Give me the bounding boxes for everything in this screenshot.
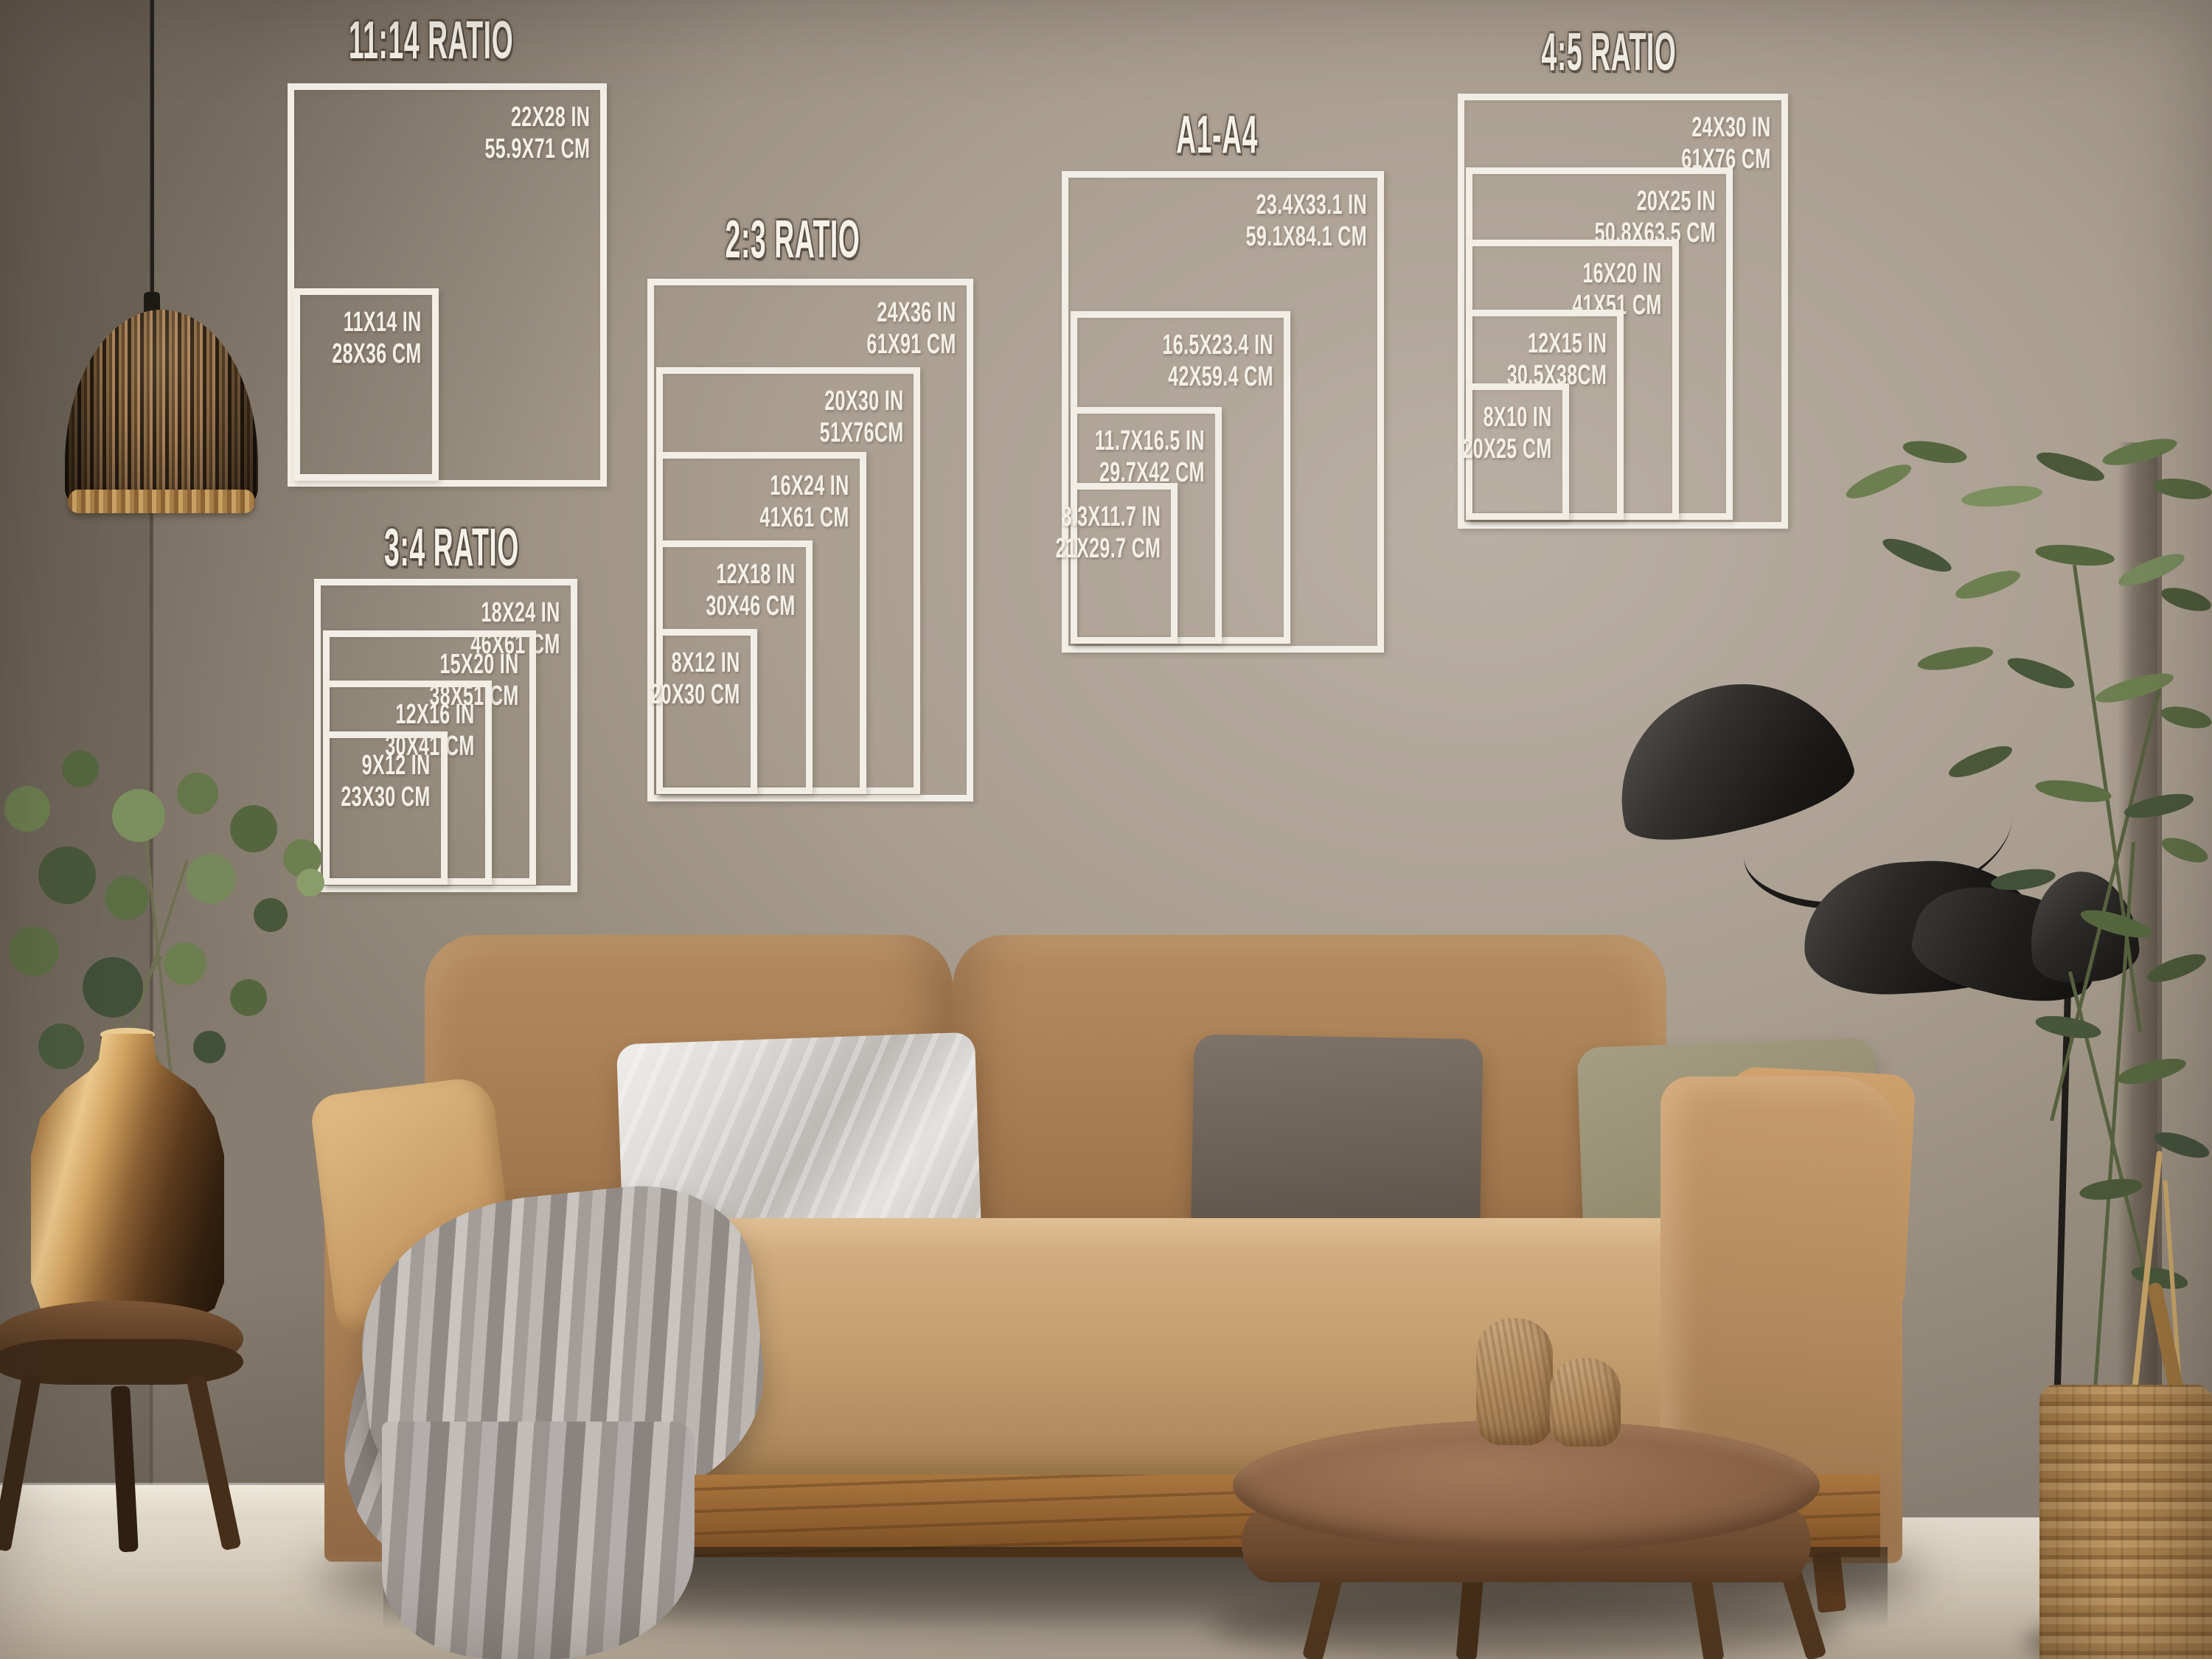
plant-leaf [38, 1023, 84, 1069]
size-label-12x18: 12X18 IN30X46 CM [706, 559, 796, 623]
pendant-lamp-rim [68, 490, 255, 513]
guide-title-a1-a4: A1-A4 [1133, 105, 1301, 165]
size-label-24x30: 24X30 IN61X76 CM [1682, 112, 1771, 176]
size-label-a1: 23.4X33.1 IN59.1X84.1 CM [1246, 189, 1367, 254]
size-label-22x28: 22X28 IN55.9X71 CM [484, 102, 590, 166]
guide-title-3-4: 3:4 RATIO [383, 518, 521, 578]
plant-leaf [4, 786, 50, 832]
size-label-9x12: 9X12 IN23X30 CM [341, 750, 431, 814]
plant-leaf [254, 898, 288, 932]
plant-leaf [105, 876, 149, 920]
size-frame-a4: 8.3X11.7 IN21X29.7 CM [1071, 483, 1178, 644]
guide-title-4-5: 4:5 RATIO [1523, 22, 1695, 83]
plant-leaf [230, 805, 277, 852]
baseboard [0, 1485, 339, 1520]
size-label-a4: 8.3X11.7 IN21X29.7 CM [1055, 501, 1161, 566]
size-frame-8x10: 8X10 IN20X25 CM [1466, 383, 1569, 520]
size-frame-9x12: 9X12 IN23X30 CM [323, 731, 448, 885]
size-frame-11x14: 11X14 IN28X36 CM [293, 288, 439, 481]
size-label-11x14: 11X14 IN28X36 CM [333, 307, 422, 371]
plant-leaf [164, 942, 206, 985]
size-label-24x36: 24X36 IN61X91 CM [867, 297, 956, 361]
size-label-a2: 16.5X23.4 IN42X59.4 CM [1163, 330, 1273, 394]
living-room-size-guide-mockup: 11:14 RATIO 22X28 IN55.9X71 CM 11X14 IN2… [0, 0, 2212, 1659]
size-label-8x12: 8X12 IN20X30 CM [651, 647, 740, 712]
throw-blanket-drape [382, 1422, 695, 1659]
size-label-16x24: 16X24 IN41X61 CM [760, 470, 849, 535]
decor-vase-small [1550, 1358, 1621, 1447]
plant-leaf [112, 789, 165, 842]
plant-leaf [83, 957, 143, 1018]
plant-leaf [9, 926, 59, 976]
plant-leaf [186, 854, 236, 904]
plant-leaf [62, 751, 99, 787]
guide-title-11-14: 11:14 RATIO [348, 10, 514, 71]
plant-leaf [296, 869, 324, 897]
plant-leaf [193, 1031, 226, 1063]
pendant-lamp-cord [150, 0, 154, 316]
guide-title-2-3: 2:3 RATIO [708, 209, 877, 270]
woven-planter-basket [2039, 1385, 2212, 1659]
size-label-12x15: 12X15 IN30.5X38CM [1507, 328, 1607, 392]
decor-vase-tall [1476, 1318, 1553, 1445]
size-label-a3: 11.7X16.5 IN29.7X42 CM [1095, 425, 1205, 490]
size-label-8x10: 8X10 IN20X25 CM [1463, 402, 1552, 466]
size-label-20x30: 20X30 IN51X76CM [819, 386, 903, 450]
plant-leaf [230, 979, 267, 1016]
size-frame-8x12: 8X12 IN20X30 CM [656, 629, 757, 794]
plant-leaf [177, 773, 218, 814]
plant-leaf [38, 846, 96, 904]
